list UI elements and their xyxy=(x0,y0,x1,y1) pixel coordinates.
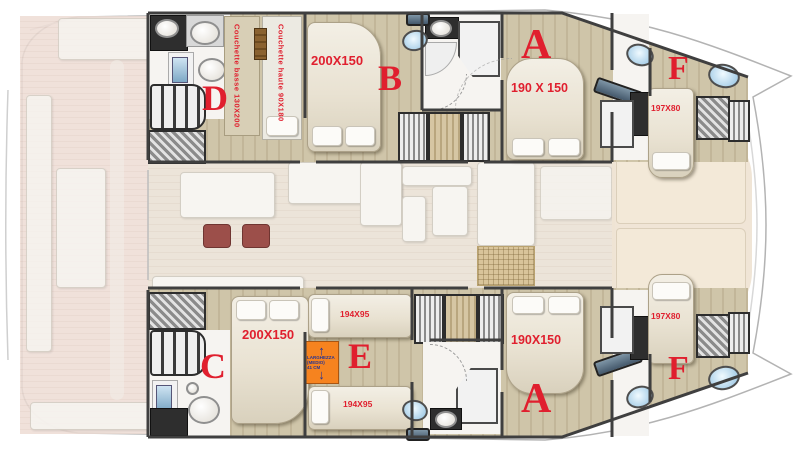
arrow-up-icon: ↑ xyxy=(318,346,325,355)
pillow xyxy=(269,300,299,320)
bathroom-bottom-sink xyxy=(435,411,457,428)
wardrobe xyxy=(398,112,428,162)
forward-seat xyxy=(402,166,472,186)
storage-hatch xyxy=(148,292,206,330)
nav-seat xyxy=(540,166,612,220)
bathroom-top-sink xyxy=(430,20,452,37)
bow-locker xyxy=(696,314,730,358)
pillow xyxy=(312,126,342,146)
cabin-a-top-label: A xyxy=(521,24,551,66)
cabin-c-label: C xyxy=(200,348,226,384)
pillow xyxy=(512,138,544,156)
pillow xyxy=(652,282,690,300)
bow-locker xyxy=(728,100,750,142)
storage-hatch xyxy=(148,130,206,164)
salon-table xyxy=(180,172,275,218)
berth-lower-dimension: Couchette basse 130X200 xyxy=(233,24,241,136)
stairs-starboard xyxy=(150,84,206,130)
cabin-f-bottom-label: F xyxy=(668,352,689,386)
bow-locker xyxy=(728,312,750,354)
cabin-a-bottom-label: A xyxy=(521,378,551,420)
corridor-shower xyxy=(600,100,634,148)
wardrobe xyxy=(444,294,478,344)
hull-window xyxy=(406,13,430,26)
bow-locker xyxy=(696,96,730,140)
mirror-d xyxy=(172,57,188,83)
bed-e-fwd-dimension: 194X95 xyxy=(340,310,369,319)
berth-upper-dimension: Couchette haute 90X180 xyxy=(277,24,285,136)
pillow xyxy=(512,296,544,314)
shower-c xyxy=(150,408,188,436)
cabin-b-label: B xyxy=(378,60,402,96)
arrow-down-icon: ↓ xyxy=(318,370,325,379)
bed-a-top-dimension: 190 X 150 xyxy=(511,82,568,95)
hull-window xyxy=(406,428,430,441)
bed-c-dimension: 200X150 xyxy=(242,328,294,341)
corridor-shower xyxy=(600,306,634,354)
pillow xyxy=(548,296,580,314)
wardrobe xyxy=(462,112,490,162)
toilet-c xyxy=(188,396,220,424)
pillow xyxy=(548,138,580,156)
bed-f-bottom-dimension: 197X80 xyxy=(651,312,680,321)
bed-f-top-dimension: 197X80 xyxy=(651,104,680,113)
galley-island xyxy=(477,162,535,246)
galley-counter-return xyxy=(360,162,402,226)
cockpit-aft-bench xyxy=(30,402,150,430)
cockpit-walkway xyxy=(110,60,124,400)
pillow xyxy=(236,300,266,320)
bed-b-dimension: 200X150 xyxy=(311,54,363,67)
cabin-d-label: D xyxy=(202,80,228,116)
galley-rug xyxy=(477,246,535,286)
wardrobe xyxy=(414,294,444,344)
forward-seat-side xyxy=(402,196,426,242)
wardrobe xyxy=(428,112,462,162)
bed-e-aft-dimension: 194X95 xyxy=(343,400,372,409)
cockpit-table xyxy=(56,168,106,288)
catamaran-floorplan: Couchette basse 130X200 Couchette haute … xyxy=(0,0,797,450)
bunk-ladder xyxy=(254,28,267,60)
pillow xyxy=(652,152,690,170)
pillow xyxy=(311,390,329,424)
pillow xyxy=(345,126,375,146)
pillow xyxy=(311,298,329,332)
stairs-port xyxy=(150,330,206,376)
width-annotation: ↑ LARGHEZZA (MEDIO) 41 CM ↓ xyxy=(304,341,339,384)
cockpit-side-bench xyxy=(26,95,52,352)
cabin-f-top-label: F xyxy=(668,52,689,86)
knob xyxy=(186,382,199,395)
bed-a-bottom-dimension: 190X150 xyxy=(511,334,561,347)
shower-d-drain xyxy=(155,19,179,38)
cockpit-console xyxy=(58,18,150,60)
wardrobe xyxy=(478,294,504,344)
sink-d xyxy=(190,21,220,45)
salon-stool xyxy=(242,224,270,248)
cabin-e-label: E xyxy=(348,338,372,374)
forward-table xyxy=(432,186,468,236)
salon-stool xyxy=(203,224,231,248)
